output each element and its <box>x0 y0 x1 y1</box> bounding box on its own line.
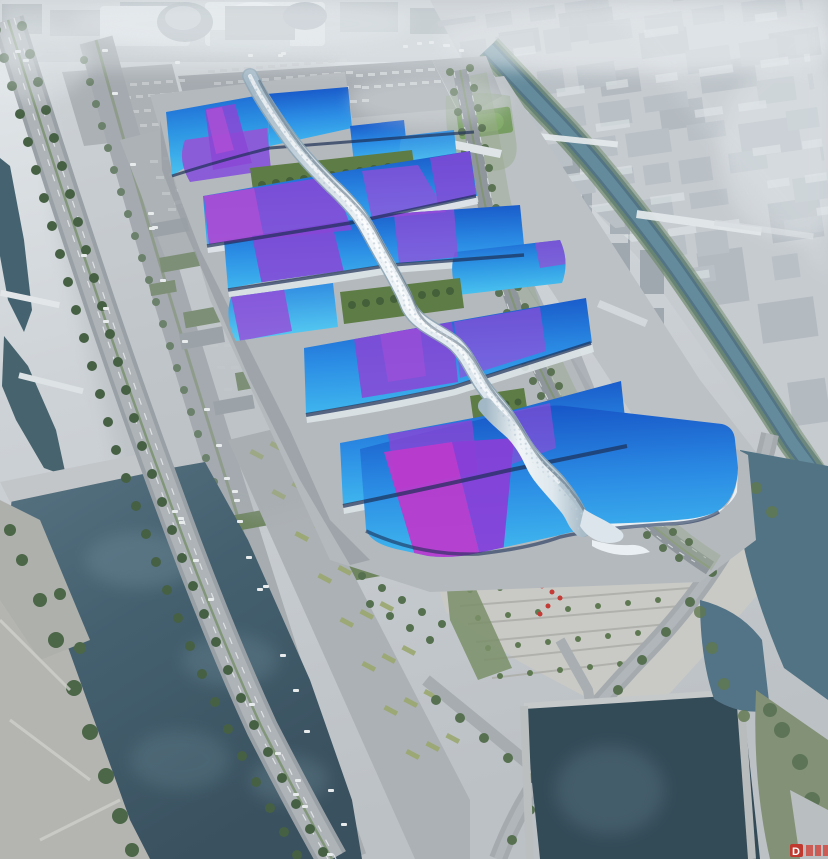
svg-text:D: D <box>792 846 800 858</box>
